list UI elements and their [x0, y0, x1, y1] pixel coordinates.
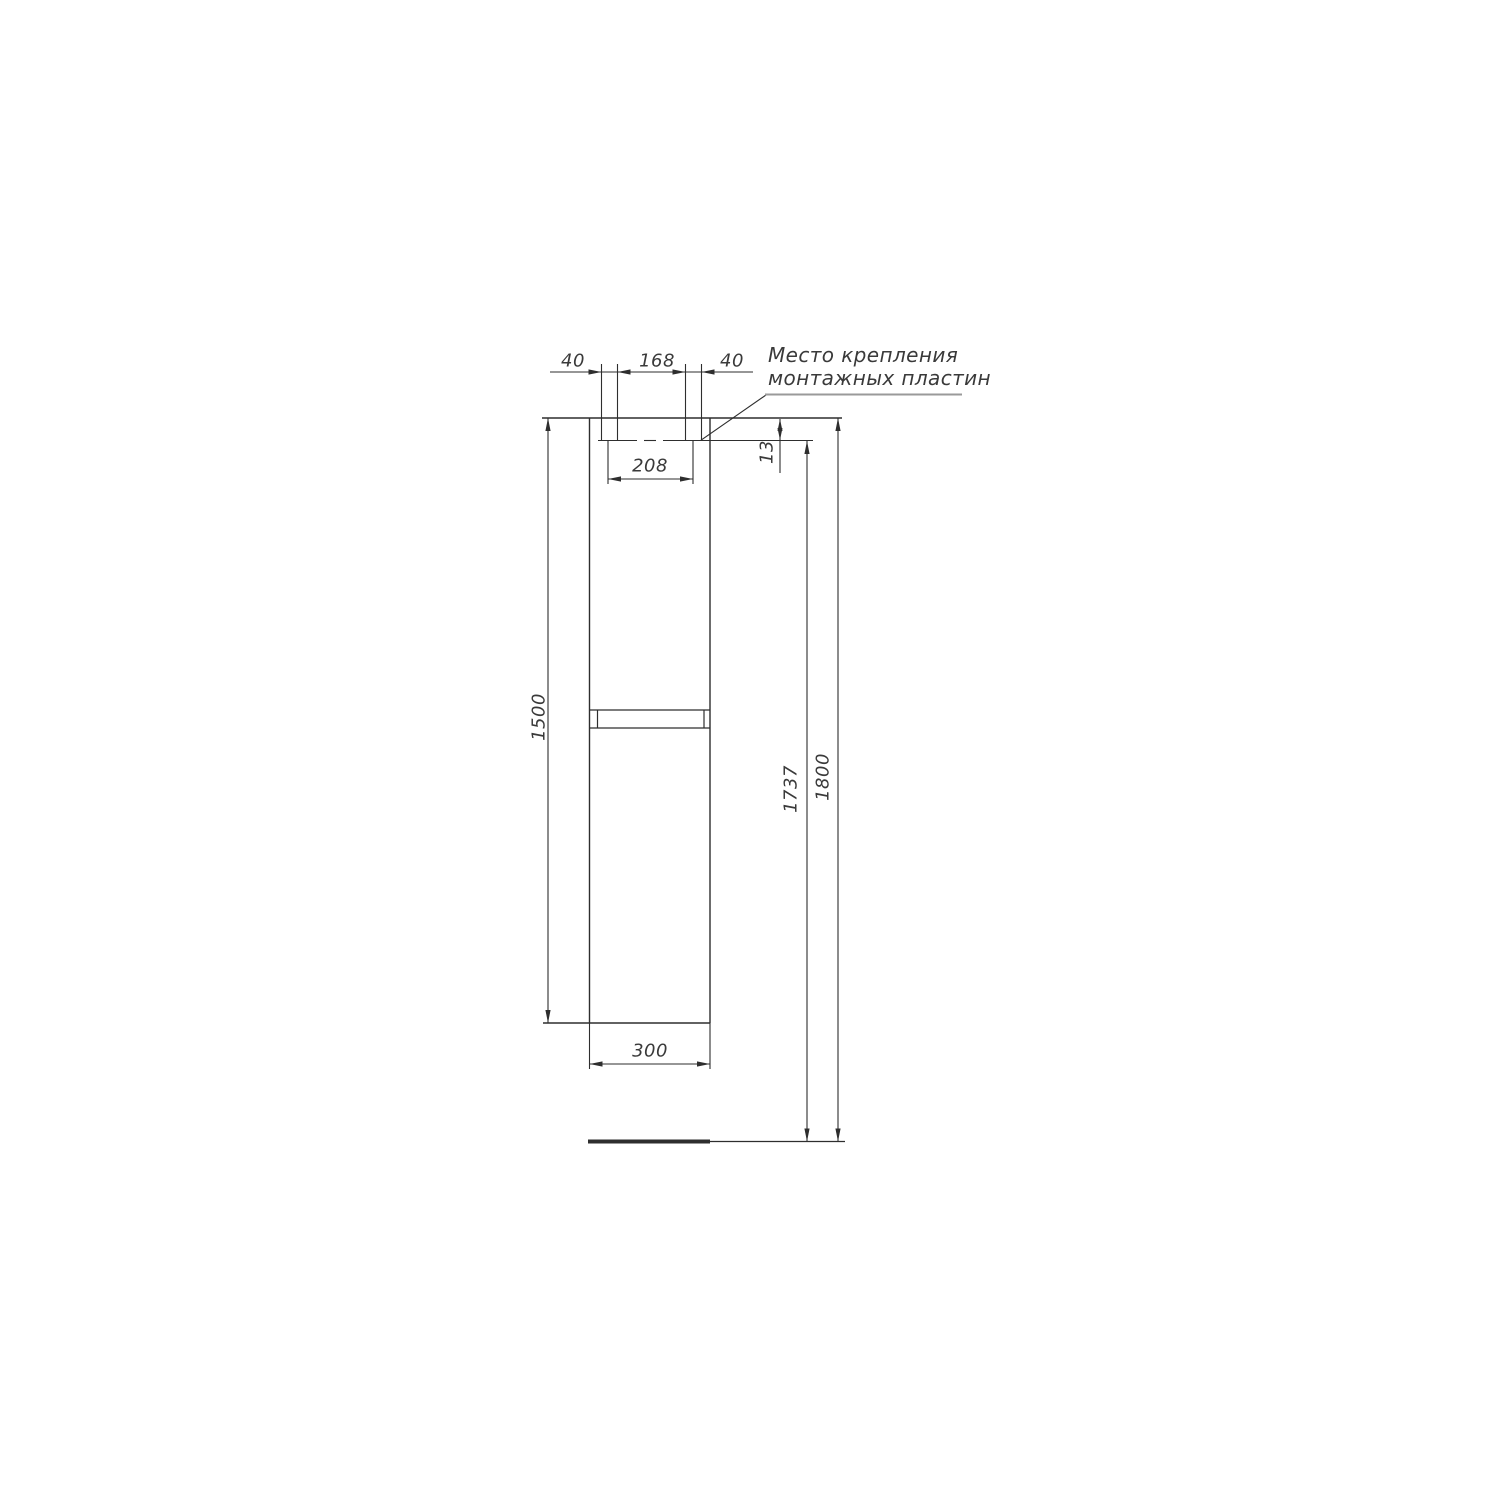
dim-text-208: 208 — [632, 456, 668, 477]
arrow — [778, 428, 783, 440]
dim-text-168: 168 — [639, 351, 675, 372]
dim-text-1800: 1800 — [813, 753, 834, 801]
arrow — [804, 441, 809, 454]
arrow — [702, 369, 715, 374]
arrow — [835, 1129, 840, 1142]
annotation-line-1: Место крепления — [768, 344, 991, 367]
dim-text-40-right: 40 — [720, 351, 744, 372]
dim-text-1500: 1500 — [529, 693, 550, 741]
drawing-canvas: 40 168 40 208 13 1500 1737 1800 300 Мест… — [0, 0, 1500, 1500]
mounting-plate-annotation: Место крепления монтажных пластин — [768, 344, 991, 390]
arrow — [618, 369, 631, 374]
dim-text-13: 13 — [757, 440, 778, 464]
annotation-line-2: монтажных пластин — [768, 367, 991, 390]
dim-text-40-left: 40 — [561, 351, 585, 372]
arrow — [590, 1061, 603, 1066]
arrow — [589, 369, 602, 374]
arrow — [545, 418, 550, 431]
arrow — [545, 1010, 550, 1023]
arrow — [608, 476, 621, 481]
arrow — [697, 1061, 710, 1066]
dimension-drawing — [0, 0, 1500, 1500]
dim-text-300: 300 — [632, 1041, 668, 1062]
dim-text-1737: 1737 — [781, 765, 802, 813]
arrow — [680, 476, 693, 481]
arrow — [835, 418, 840, 431]
arrow — [804, 1129, 809, 1142]
